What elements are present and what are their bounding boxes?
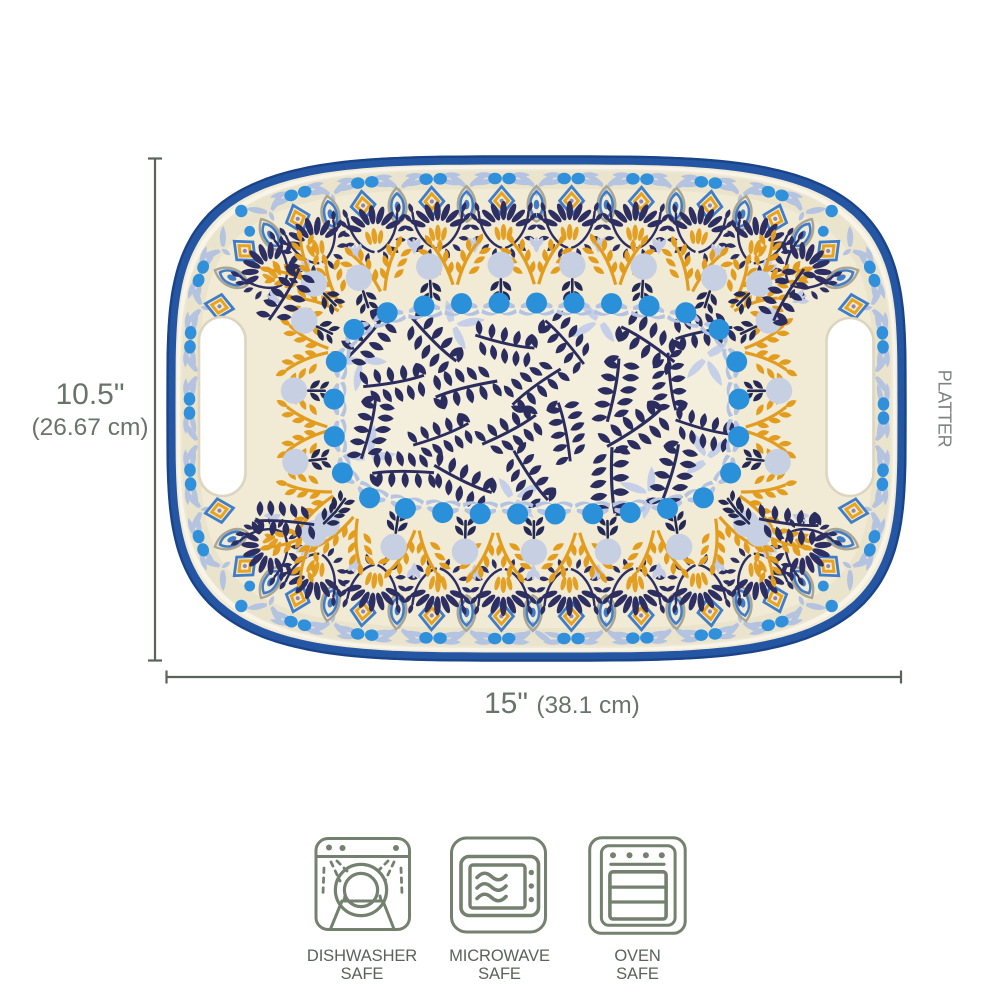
- svg-text:MICROWAVE: MICROWAVE: [449, 947, 550, 965]
- svg-text:OVEN: OVEN: [614, 947, 660, 965]
- svg-text:SAFE: SAFE: [616, 965, 659, 983]
- svg-text:DISHWASHER: DISHWASHER: [307, 947, 417, 965]
- svg-text:SAFE: SAFE: [478, 965, 521, 983]
- svg-text:SAFE: SAFE: [341, 965, 384, 983]
